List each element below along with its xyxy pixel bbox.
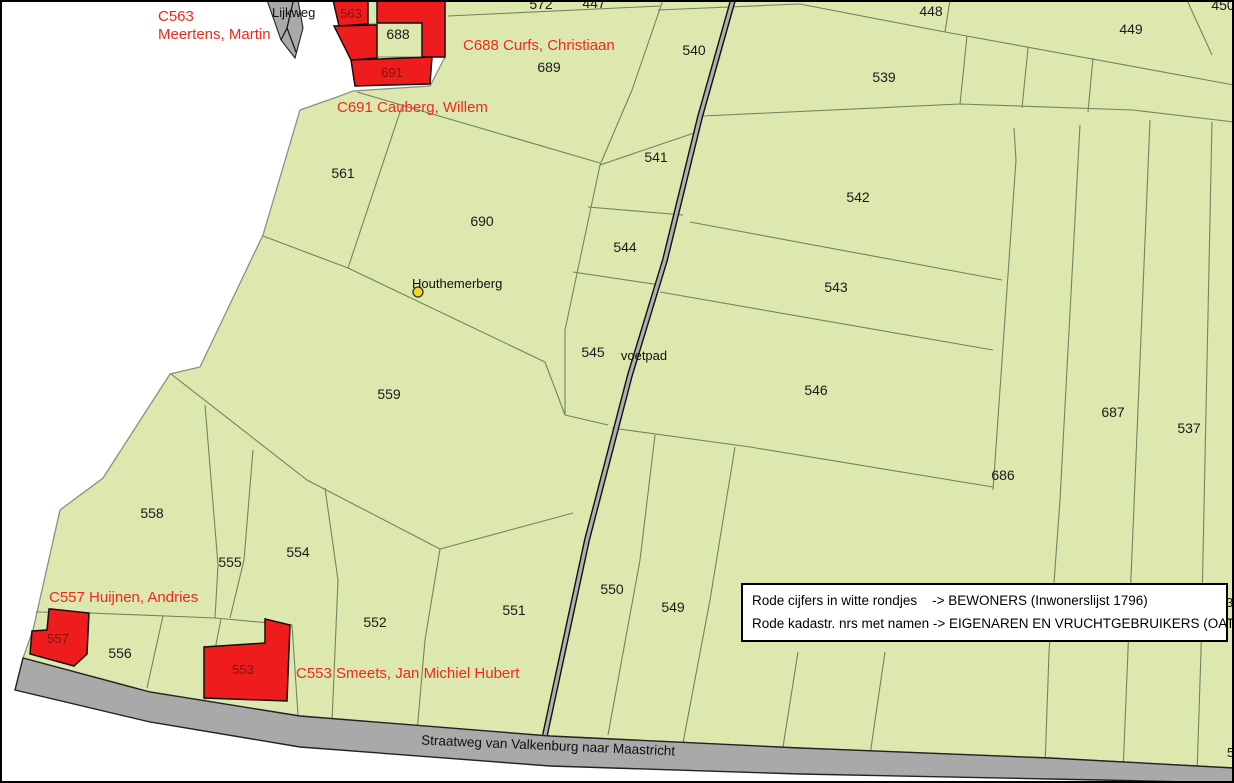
parcel-label-687: 687 — [1101, 404, 1125, 420]
parcel-label-690: 690 — [470, 213, 494, 229]
legend-line-bewoners: Rode cijfers in witte rondjes -> BEWONER… — [752, 591, 1217, 611]
parcel-label-688: 688 — [386, 26, 410, 42]
building-688-left-wing — [334, 25, 377, 60]
parcel-label-546: 546 — [804, 382, 828, 398]
owner-label-C691-line1: C691 Cauberg, Willem — [337, 99, 488, 116]
parcel-label-544: 544 — [613, 239, 637, 255]
parcel-label-541: 541 — [644, 149, 668, 165]
owner-label-C563-line2: Meertens, Martin — [158, 26, 271, 43]
parcel-label-561: 561 — [331, 165, 355, 181]
parcel-label-542: 542 — [846, 189, 870, 205]
parcel-label-549: 549 — [661, 599, 685, 615]
parcel-label-537: 537 — [1177, 420, 1201, 436]
parcel-label-448: 448 — [919, 3, 943, 19]
cadastral-map: 5724474484494505405396896885616905415445… — [0, 0, 1234, 783]
owner-label-C553-line1: C553 Smeets, Jan Michiel Hubert — [296, 665, 520, 682]
building-label-557: 557 — [47, 631, 69, 646]
courtyard-1 — [368, 0, 377, 24]
map-canvas: 5724474484494505405396896885616905415445… — [0, 0, 1234, 783]
lijkweg-label: Lijkweg — [272, 5, 315, 20]
legend-box: Rode cijfers in witte rondjes -> BEWONER… — [741, 583, 1228, 642]
parcel-label-550: 550 — [600, 581, 624, 597]
parcel-label-545: 545 — [581, 344, 605, 360]
building-label-553: 553 — [232, 662, 254, 677]
parcel-label-543: 543 — [824, 279, 848, 295]
building-label-563: 563 — [340, 6, 362, 21]
owner-label-C563-line1: C563 — [158, 8, 194, 25]
owner-label-C557-line1: C557 Huijnen, Andries — [49, 589, 198, 606]
parcel-label-551: 551 — [502, 602, 526, 618]
owner-label-C688-line1: C688 Curfs, Christiaan — [463, 37, 615, 54]
building-label-691: 691 — [381, 65, 403, 80]
parcel-label-686: 686 — [991, 467, 1015, 483]
parcel-label-554: 554 — [286, 544, 310, 560]
houthemerberg-label: Houthemerberg — [412, 276, 502, 291]
parcel-label-540: 540 — [682, 42, 706, 58]
legend-line-eigenaren: Rode kadastr. nrs met namen -> EIGENAREN… — [752, 614, 1217, 634]
parcel-label-552: 552 — [363, 614, 387, 630]
parcel-label-559: 559 — [377, 386, 401, 402]
parcel-label-556: 556 — [108, 645, 132, 661]
parcel-label-558: 558 — [140, 505, 164, 521]
parcel-label-689: 689 — [537, 59, 561, 75]
voetpad-label: voetpad — [621, 348, 667, 363]
parcel-label-555: 555 — [218, 554, 242, 570]
parcel-label-539: 539 — [872, 69, 896, 85]
parcel-label-449: 449 — [1119, 21, 1143, 37]
